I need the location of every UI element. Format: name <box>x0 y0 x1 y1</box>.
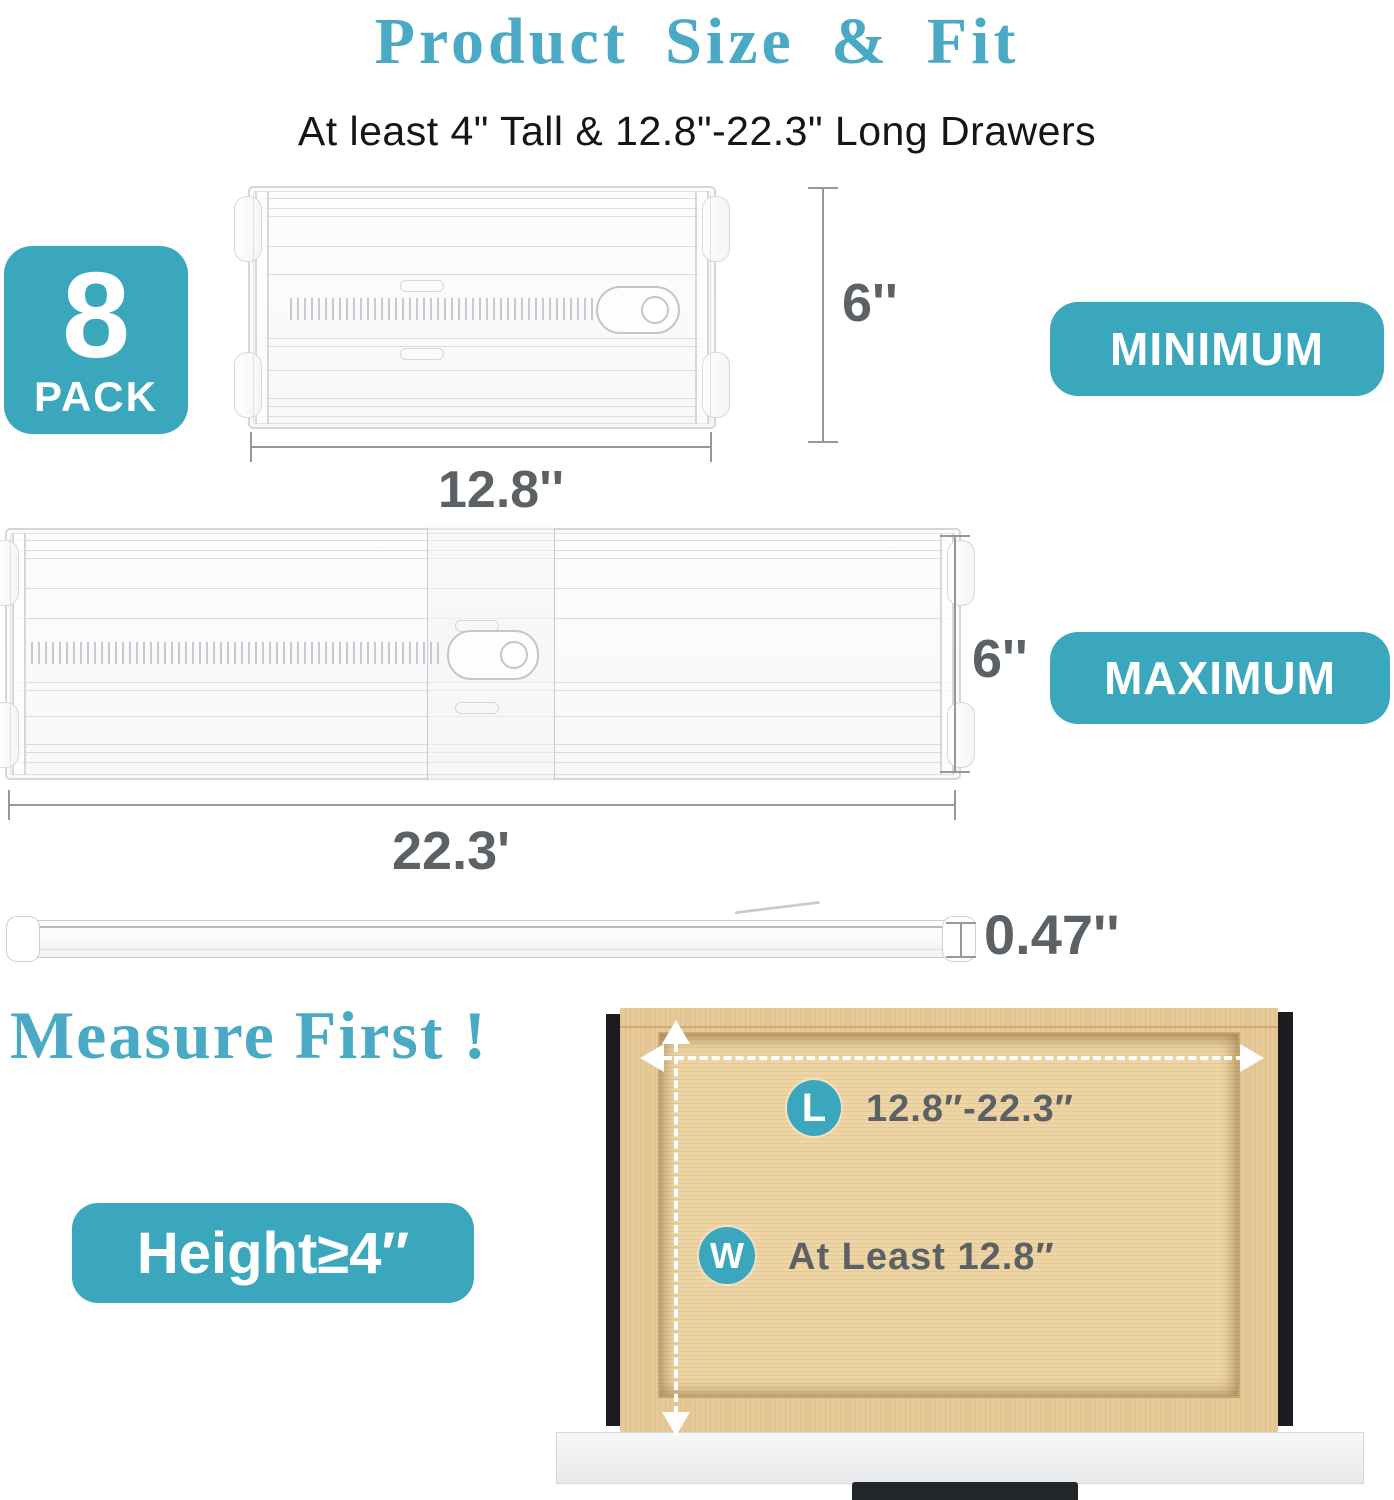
divider-side-profile <box>30 920 954 958</box>
arrow-up-icon <box>662 1020 690 1044</box>
panel-line <box>260 208 704 209</box>
maximum-badge-label: MAXIMUM <box>1104 651 1336 705</box>
arrow-left-icon <box>640 1044 664 1072</box>
divider-maximum-illustration <box>5 528 961 780</box>
minimum-badge-label: MINIMUM <box>1110 322 1324 376</box>
panel-line <box>260 416 704 417</box>
panel-line <box>260 398 704 399</box>
drawer-top-view <box>620 1008 1278 1432</box>
minimum-badge: MINIMUM <box>1050 302 1384 396</box>
subtitle: At least 4" Tall & 12.8"-22.3" Long Draw… <box>0 108 1394 155</box>
width-icon: W <box>699 1227 755 1284</box>
width-dimension-line-max <box>8 804 956 806</box>
width-dimension-line-min <box>250 446 712 448</box>
max-width-label: 22.3' <box>392 820 510 882</box>
corner-bumper <box>947 702 975 768</box>
panel-line <box>260 246 704 247</box>
maximum-badge: MAXIMUM <box>1050 632 1390 724</box>
thickness-label: 0.47'' <box>984 902 1120 967</box>
ratchet-strip <box>290 298 598 320</box>
thickness-dimension-line <box>960 922 962 958</box>
clip-slot <box>455 702 499 714</box>
max-height-label: 6'' <box>972 628 1028 690</box>
length-range-text: 12.8″-22.3″ <box>866 1088 1074 1131</box>
pack-number: 8 <box>62 259 130 371</box>
buckle-button <box>500 641 528 669</box>
buckle-button <box>641 296 669 324</box>
height-dimension-line-max <box>954 535 956 773</box>
corner-bumper <box>702 352 730 418</box>
panel-line <box>260 370 704 371</box>
measure-first-heading: Measure First ! <box>10 996 488 1075</box>
arrow-down-icon <box>662 1412 690 1436</box>
corner-bumper <box>947 540 975 606</box>
min-width-label: 12.8'' <box>438 460 564 520</box>
panel-line <box>260 198 704 199</box>
corner-bumper <box>234 196 262 262</box>
page-title: Product Size & Fit <box>0 4 1394 80</box>
divider-minimum-illustration <box>248 186 716 429</box>
length-icon: L <box>787 1080 841 1136</box>
pack-word: PACK <box>34 373 158 421</box>
drawer-slide-right <box>1276 1012 1293 1426</box>
arrow-right-icon <box>1240 1044 1264 1072</box>
product-size-infographic: Product Size & Fit At least 4" Tall & 12… <box>0 0 1394 1500</box>
panel-line <box>260 406 704 407</box>
corner-bumper <box>702 196 730 262</box>
cabinet-base <box>556 1432 1364 1484</box>
corner-bumper <box>0 540 19 606</box>
panel-line <box>260 216 704 217</box>
panel-line <box>260 346 704 347</box>
end-bumper <box>6 916 40 962</box>
width-minimum-text: At Least 12.8″ <box>788 1236 1055 1279</box>
drawer-back-edge <box>620 1026 1278 1028</box>
clip-slot <box>400 348 444 360</box>
length-measure-dashed-line <box>664 1056 1244 1060</box>
ratchet-strip <box>31 642 443 664</box>
corner-bumper <box>234 352 262 418</box>
height-dimension-line-min <box>822 187 824 443</box>
height-requirement-badge: Height≥4″ <box>72 1203 474 1303</box>
lock-buckle <box>447 630 539 680</box>
clip-slot <box>400 280 444 292</box>
drawer-handle <box>852 1482 1078 1500</box>
lock-buckle <box>596 286 680 334</box>
panel-line <box>260 274 704 275</box>
width-measure-dashed-line <box>674 1044 678 1414</box>
drawer-bottom-panel <box>658 1032 1240 1398</box>
panel-line <box>260 338 704 339</box>
min-height-label: 6'' <box>842 272 898 334</box>
corner-bumper <box>0 702 19 768</box>
pack-count-badge: 8 PACK <box>4 246 188 434</box>
height-requirement-label: Height≥4″ <box>137 1220 409 1287</box>
